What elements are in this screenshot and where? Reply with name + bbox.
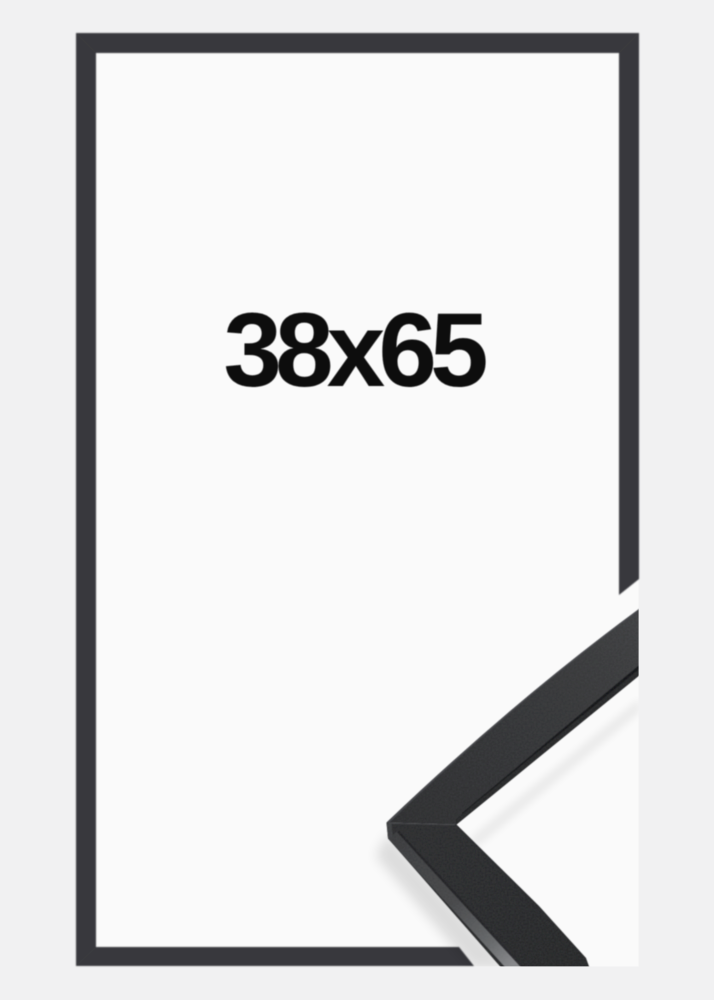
- svg-text:38x65: 38x65: [224, 292, 489, 409]
